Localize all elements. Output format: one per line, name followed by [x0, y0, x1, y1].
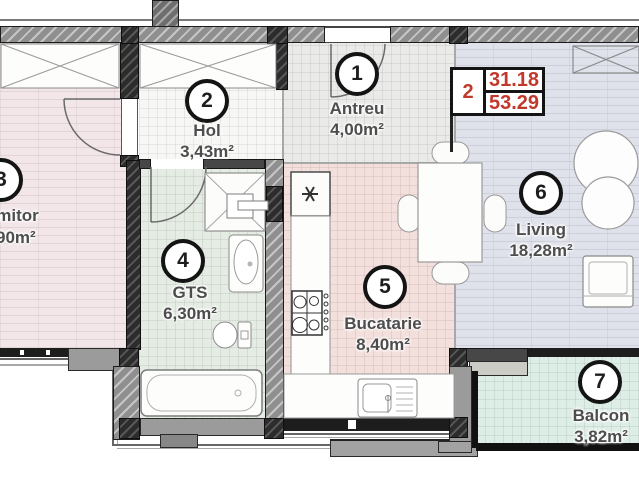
room-4-number: 4 [161, 239, 205, 283]
room-1-number: 1 [335, 52, 379, 96]
bedroom-wardrobe [1, 44, 119, 88]
room-5-number: 5 [363, 265, 407, 309]
room-6-name: Living [481, 219, 601, 240]
fridge [291, 172, 330, 216]
room-3-name: Dormitor [0, 205, 77, 226]
bathtub [141, 370, 262, 416]
room-5-area: 8,40m² [323, 334, 443, 355]
room-1-name: Antreu [297, 98, 417, 119]
room-4-label: GTS 6,30m² [130, 282, 250, 324]
room-5-name: Bucatarie [323, 313, 443, 334]
room-7-name: Balcon [541, 405, 639, 426]
floor-plan: 2 31.18 53.29 1 Antreu 4,00m² 2 Hol 3,43… [0, 0, 639, 480]
chair-bottom [432, 262, 469, 284]
apartment-info-box: 2 31.18 53.29 [450, 67, 545, 116]
room-2-area: 3,43m² [147, 141, 267, 162]
apartment-number: 2 [453, 70, 483, 113]
room-2-name: Hol [147, 120, 267, 141]
room-5-label: Bucatarie 8,40m² [323, 313, 443, 355]
room-4-name: GTS [130, 282, 250, 303]
room-2-label: Hol 3,43m² [147, 120, 267, 162]
toilet [213, 322, 251, 348]
room-3-area: 90m² [0, 227, 86, 248]
room-6-label: Living 18,28m² [481, 219, 601, 261]
room-7-number: 7 [578, 360, 622, 404]
chair-left [398, 195, 420, 232]
shower-tray [205, 173, 268, 231]
room-1-area: 4,00m² [297, 119, 417, 140]
dining-table [398, 142, 506, 284]
kitchen-sink [358, 379, 417, 417]
drying-rack [573, 46, 639, 73]
room-1-label: Antreu 4,00m² [297, 98, 417, 140]
info-box-leader-line [450, 113, 453, 152]
room-7-area: 3,82m² [541, 426, 639, 447]
sofa [583, 256, 633, 307]
area-useful-value: 31.18 [486, 70, 542, 90]
room-6-number: 6 [519, 171, 563, 215]
room-2-number: 2 [185, 79, 229, 123]
living-round-chairs [574, 131, 638, 229]
room-4-area: 6,30m² [130, 303, 250, 324]
room-7-label: Balcon 3,82m² [541, 405, 639, 447]
room-6-area: 18,28m² [481, 240, 601, 261]
bath-door [151, 167, 206, 222]
bedroom-door [64, 99, 120, 155]
area-total-value: 53.29 [486, 90, 542, 113]
